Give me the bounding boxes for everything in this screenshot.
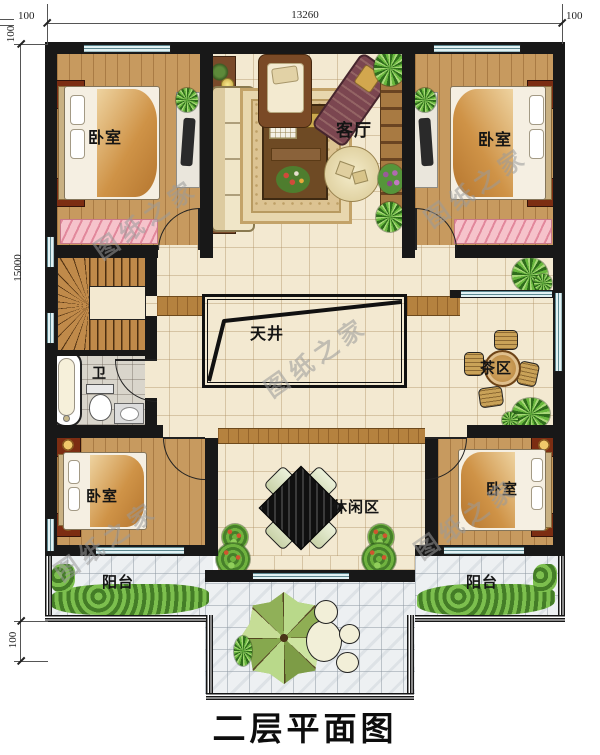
room-label-tea-area: 茶区 bbox=[480, 357, 512, 378]
window-top-right bbox=[433, 44, 521, 53]
extension-line bbox=[562, 4, 563, 44]
extension-line bbox=[47, 4, 48, 44]
armchair bbox=[258, 54, 312, 128]
railing-balcony-right-east bbox=[558, 556, 565, 622]
dim-label-height: 15000 bbox=[12, 240, 24, 296]
bed-bench bbox=[454, 219, 552, 244]
railing-patio-west bbox=[206, 615, 213, 700]
potted-plant-icon bbox=[414, 88, 436, 112]
stair-void bbox=[89, 286, 146, 320]
wall-stair-east-2 bbox=[145, 316, 157, 360]
stepping-stone-icon bbox=[336, 652, 359, 673]
walkway-leisure-threshold bbox=[218, 428, 425, 444]
window-top-left bbox=[83, 44, 171, 53]
pillow bbox=[529, 95, 544, 125]
left-dimension-line bbox=[20, 44, 21, 662]
floor-plan-title: 二层平面图 bbox=[150, 702, 460, 750]
room-label-leisure: 休闲区 bbox=[332, 496, 380, 517]
hedge-shrub-icon bbox=[533, 564, 557, 592]
stepping-stone-icon bbox=[306, 620, 342, 662]
floor-plan-canvas: 13260 100 100 100 15000 100 bbox=[0, 0, 600, 755]
wall-mid-south-right bbox=[467, 425, 565, 438]
window-left-bedroom-bl bbox=[46, 518, 55, 552]
sink-basin bbox=[120, 407, 139, 421]
room-label-living: 客厅 bbox=[336, 116, 372, 141]
railing-balcony-right-south bbox=[415, 615, 565, 622]
pillow bbox=[531, 486, 543, 510]
dim-label-100-left: 100 bbox=[18, 10, 35, 22]
stepping-stone-icon bbox=[314, 600, 338, 624]
ottoman-pillow bbox=[352, 169, 369, 184]
window-left-stairs bbox=[46, 236, 55, 268]
pillow bbox=[68, 487, 80, 511]
bathtub-basin bbox=[58, 358, 75, 416]
stair-flight-lower bbox=[89, 320, 146, 354]
window-tea-north bbox=[460, 290, 553, 298]
tea-chair bbox=[478, 385, 505, 408]
dim-label-100-bottom: 100 bbox=[7, 625, 19, 655]
room-label-bedroom-tl: 卧室 bbox=[88, 124, 122, 148]
room-label-atrium: 天井 bbox=[250, 320, 284, 344]
potted-plant-icon bbox=[176, 88, 198, 112]
room-label-bathroom: 卫 bbox=[92, 363, 107, 383]
top-dimension-line bbox=[47, 23, 563, 24]
wall-bedroom-tr-south bbox=[455, 245, 565, 258]
toilet-icon bbox=[86, 384, 114, 394]
potted-plant-icon bbox=[234, 636, 252, 666]
pillow bbox=[531, 458, 543, 482]
flower-bouquet-icon bbox=[276, 166, 310, 193]
railing-patio-south bbox=[206, 693, 414, 700]
pillow bbox=[70, 129, 85, 159]
toilet-bowl bbox=[89, 394, 112, 421]
railing-balcony-left-south bbox=[45, 615, 213, 622]
stair-winders bbox=[58, 253, 89, 354]
stepping-stone-icon bbox=[339, 624, 360, 644]
window-bedroom-br-south bbox=[443, 546, 525, 555]
wall-bedroom-tl-east bbox=[200, 42, 213, 258]
sink-icon bbox=[114, 403, 144, 424]
window-leisure-south bbox=[252, 572, 350, 580]
room-label-bedroom-bl: 卧室 bbox=[86, 485, 118, 506]
wall-left bbox=[45, 42, 57, 556]
room-label-balcony-left: 阳台 bbox=[102, 571, 134, 592]
dim-label-width: 13260 bbox=[255, 9, 355, 21]
pillow bbox=[68, 460, 80, 484]
dim-label-100-right: 100 bbox=[566, 10, 583, 22]
pillow bbox=[529, 129, 544, 159]
window-right-tea bbox=[554, 292, 563, 372]
wall-bedroom-bl-east bbox=[205, 438, 218, 556]
walkway-right bbox=[407, 296, 460, 316]
table-runner bbox=[271, 148, 321, 161]
wall-mid-south-left bbox=[45, 425, 163, 438]
wall-bedroom-tr-west bbox=[402, 42, 415, 258]
railing-patio-east bbox=[407, 615, 414, 700]
staircase bbox=[57, 252, 145, 353]
room-label-balcony-right: 阳台 bbox=[466, 571, 498, 592]
wall-bath-north bbox=[45, 350, 145, 356]
walkway-left bbox=[157, 296, 202, 316]
bed-headboard bbox=[545, 452, 552, 528]
wall-stair-east-1 bbox=[145, 258, 157, 296]
bathtub-drain bbox=[63, 415, 70, 422]
flower-pot-icon bbox=[378, 164, 404, 194]
round-ottoman bbox=[324, 146, 380, 202]
window-left-bath bbox=[46, 312, 55, 344]
dim-label-100-corner: 100 bbox=[5, 19, 17, 49]
tea-chair bbox=[494, 330, 518, 350]
potted-plant-icon bbox=[376, 202, 404, 232]
pillow bbox=[70, 95, 85, 125]
